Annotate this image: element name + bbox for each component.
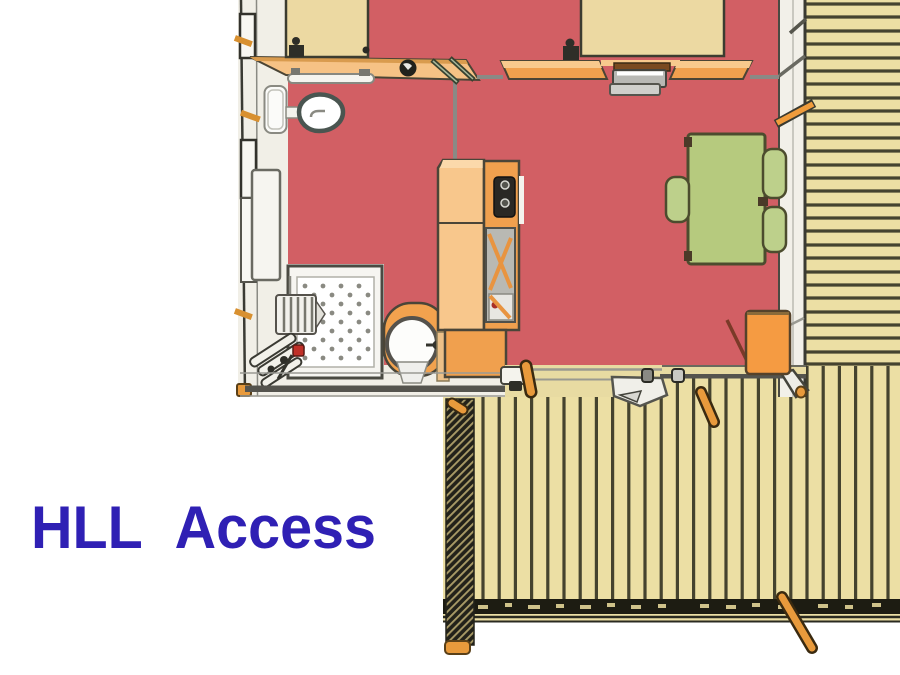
svg-text:HLL Access: HLL Access — [31, 494, 376, 561]
